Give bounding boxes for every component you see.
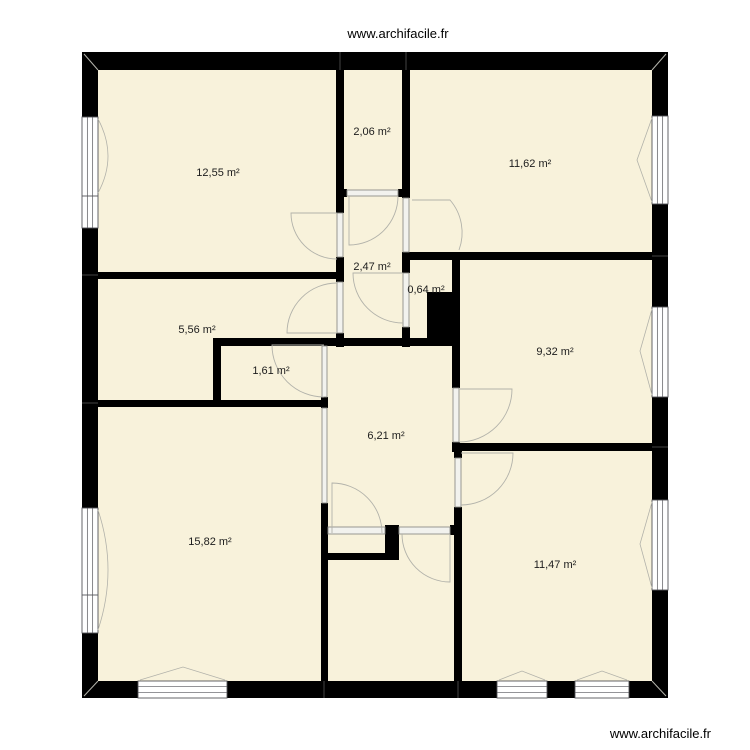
watermark-top: www.archifacile.fr — [346, 26, 449, 41]
wall — [98, 400, 322, 407]
window — [497, 681, 547, 698]
room-5-56-label: 5,56 m² — [178, 324, 216, 336]
room-0-64-label: 0,64 m² — [407, 284, 445, 296]
wall — [402, 252, 410, 273]
room-11-62-label: 11,62 m² — [509, 158, 552, 170]
room-2-47-label: 2,47 m² — [353, 261, 391, 273]
wall — [458, 443, 652, 451]
room-6-21-label: 6,21 m² — [367, 430, 405, 442]
door-opening — [328, 527, 385, 534]
wall — [336, 257, 344, 282]
door-opening — [322, 408, 327, 503]
wall — [402, 327, 410, 347]
door-opening — [403, 273, 409, 327]
wall — [454, 451, 462, 458]
wall — [452, 252, 460, 388]
door-opening — [337, 213, 343, 257]
room-12-55-label: 12,55 m² — [196, 167, 240, 179]
wall — [98, 272, 337, 279]
wall — [450, 525, 456, 535]
door-opening — [337, 282, 343, 333]
wall — [427, 292, 452, 340]
watermark-bottom: www.archifacile.fr — [609, 726, 712, 741]
wall — [327, 553, 392, 560]
window — [82, 508, 98, 633]
floor-area — [98, 70, 652, 681]
room-2-06-label: 2,06 m² — [353, 126, 391, 138]
floorplan-page: www.archifacile.fr 12,55 m²2,06 m²11,62 … — [0, 0, 750, 750]
window — [652, 500, 668, 590]
wall — [213, 338, 221, 407]
wall — [336, 333, 344, 347]
door-opening — [455, 458, 461, 507]
door-opening — [347, 190, 398, 196]
door-opening — [399, 527, 450, 534]
room-15-82-label: 15,82 m² — [188, 536, 232, 548]
wall — [321, 397, 328, 408]
floorplan-svg: www.archifacile.fr 12,55 m²2,06 m²11,62 … — [0, 0, 750, 750]
door-opening — [453, 388, 459, 442]
wall — [410, 252, 652, 260]
room-1-61-label: 1,61 m² — [252, 365, 290, 377]
window — [575, 681, 629, 698]
room-9-32-label: 9,32 m² — [536, 346, 574, 358]
wall — [82, 52, 668, 70]
window — [138, 681, 227, 698]
wall — [398, 189, 410, 197]
wall — [336, 189, 347, 197]
window — [652, 116, 668, 204]
door-opening — [403, 198, 409, 252]
floorplan-drawing: 12,55 m²2,06 m²11,62 m²2,47 m²0,64 m²5,5… — [82, 52, 668, 698]
window — [82, 117, 98, 228]
wall — [402, 70, 410, 198]
window — [652, 307, 668, 397]
room-11-47-label: 11,47 m² — [534, 559, 577, 571]
wall — [321, 503, 328, 681]
door-opening — [322, 346, 327, 397]
